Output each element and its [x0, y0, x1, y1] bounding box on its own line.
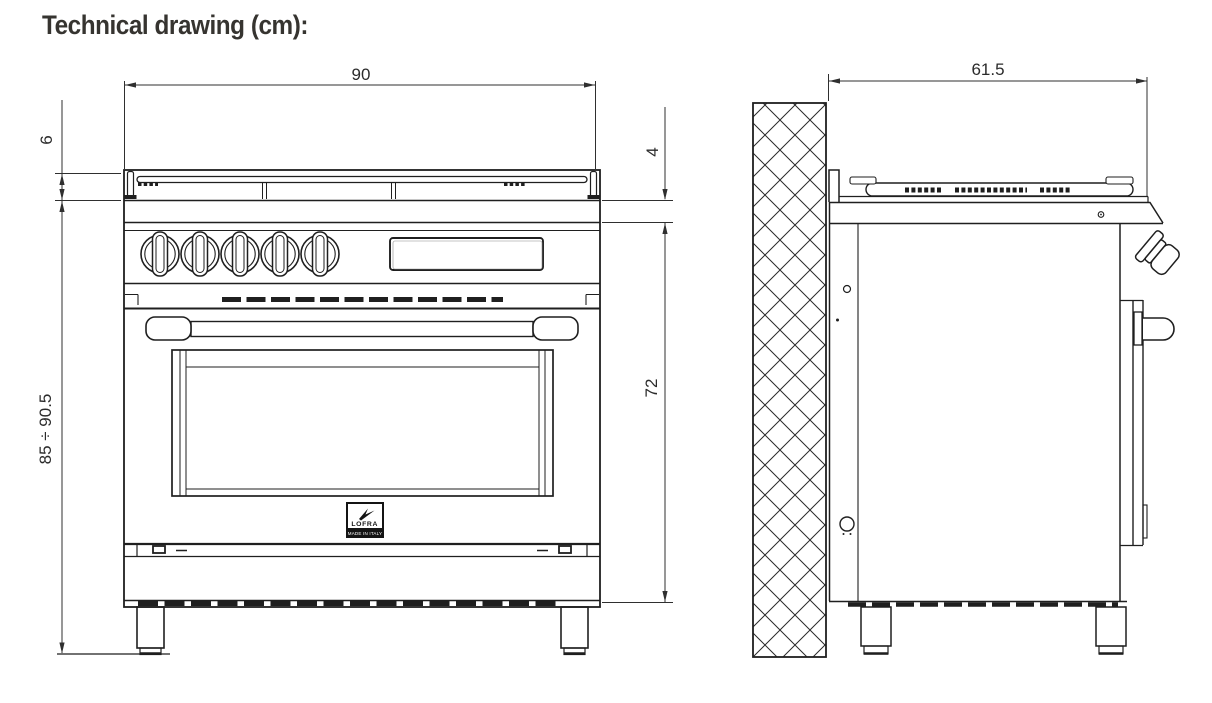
- wall-section: [753, 103, 826, 657]
- handle-cap-right: [533, 317, 578, 340]
- side-view-drawing: [753, 103, 1184, 657]
- cooktop-front: [124, 172, 600, 223]
- display-panel-inner: [393, 241, 542, 269]
- grate-dividers: [263, 182, 396, 199]
- knob-5: [301, 232, 339, 276]
- foot-right: [561, 607, 588, 648]
- grate-base-left: [125, 195, 137, 199]
- dimension-body-72: [602, 223, 673, 603]
- brand-checkmark-icon: [356, 508, 375, 521]
- hinge-hook-left: [153, 546, 165, 553]
- dim-label-depth: 61.5: [948, 60, 1028, 80]
- grate-post-right: [591, 172, 597, 197]
- brand-logo: LOFRA MADE IN ITALY: [346, 502, 384, 538]
- dim-label-total-height: 85 ÷ 90.5: [36, 369, 56, 489]
- knob-1: [141, 232, 179, 276]
- side-base: [829, 602, 1127, 655]
- grate-cap-front: [1106, 177, 1133, 184]
- foot-left: [137, 607, 164, 648]
- technical-drawing-page: Technical drawing (cm):: [0, 0, 1212, 703]
- door-window: [172, 350, 553, 496]
- vent-grille-top: [124, 295, 600, 309]
- side-rear-panel: [829, 170, 858, 601]
- handle-bracket: [1134, 312, 1142, 345]
- dim-label-body-height: 72: [642, 368, 662, 408]
- brand-logo-text: LOFRA: [352, 521, 379, 528]
- side-foot-rear: [861, 607, 891, 646]
- door-handle: [146, 317, 578, 340]
- hinge-ticks: [137, 544, 587, 556]
- side-foot-front: [1096, 607, 1126, 646]
- rear-dot: [836, 319, 839, 322]
- control-panel: [124, 231, 600, 284]
- technical-drawing-canvas: [0, 0, 1212, 703]
- dim-label-grate-height: 6: [37, 120, 57, 160]
- cooktop-slab: [839, 197, 1148, 203]
- control-bezel: [829, 203, 1163, 224]
- knob-3: [221, 232, 259, 276]
- side-knob: [1134, 230, 1183, 279]
- dim-label-rim-height: 4: [643, 132, 663, 172]
- front-view-drawing: [57, 170, 600, 655]
- grate-bar: [137, 177, 587, 183]
- hinge-hook-right: [559, 546, 571, 553]
- knob-4: [261, 232, 299, 276]
- storage-drawer: [124, 601, 600, 604]
- side-handle-grip: [1143, 318, 1174, 340]
- handle-cap-left: [146, 317, 191, 340]
- dimension-grate-6: [55, 100, 121, 201]
- dimension-total-height: [59, 200, 64, 654]
- grate-post-left: [128, 172, 134, 197]
- handle-bar: [191, 322, 533, 337]
- backguard: [829, 170, 839, 202]
- grate-cap-rear: [850, 177, 876, 184]
- grate-base-right: [588, 195, 600, 199]
- brand-origin-text: MADE IN ITALY: [346, 530, 384, 538]
- hinge-strip: [124, 544, 600, 557]
- rear-screw: [844, 286, 851, 293]
- side-front-profile: [1120, 223, 1174, 601]
- front-feet: [137, 607, 588, 655]
- display-panel: [390, 238, 543, 270]
- knob-2: [181, 232, 219, 276]
- side-cooktop: [829, 177, 1163, 224]
- brand-logo-box: LOFRA: [346, 502, 384, 530]
- dim-label-width: 90: [331, 65, 391, 85]
- dimension-width-90: [125, 81, 596, 169]
- gas-inlet: [840, 517, 854, 531]
